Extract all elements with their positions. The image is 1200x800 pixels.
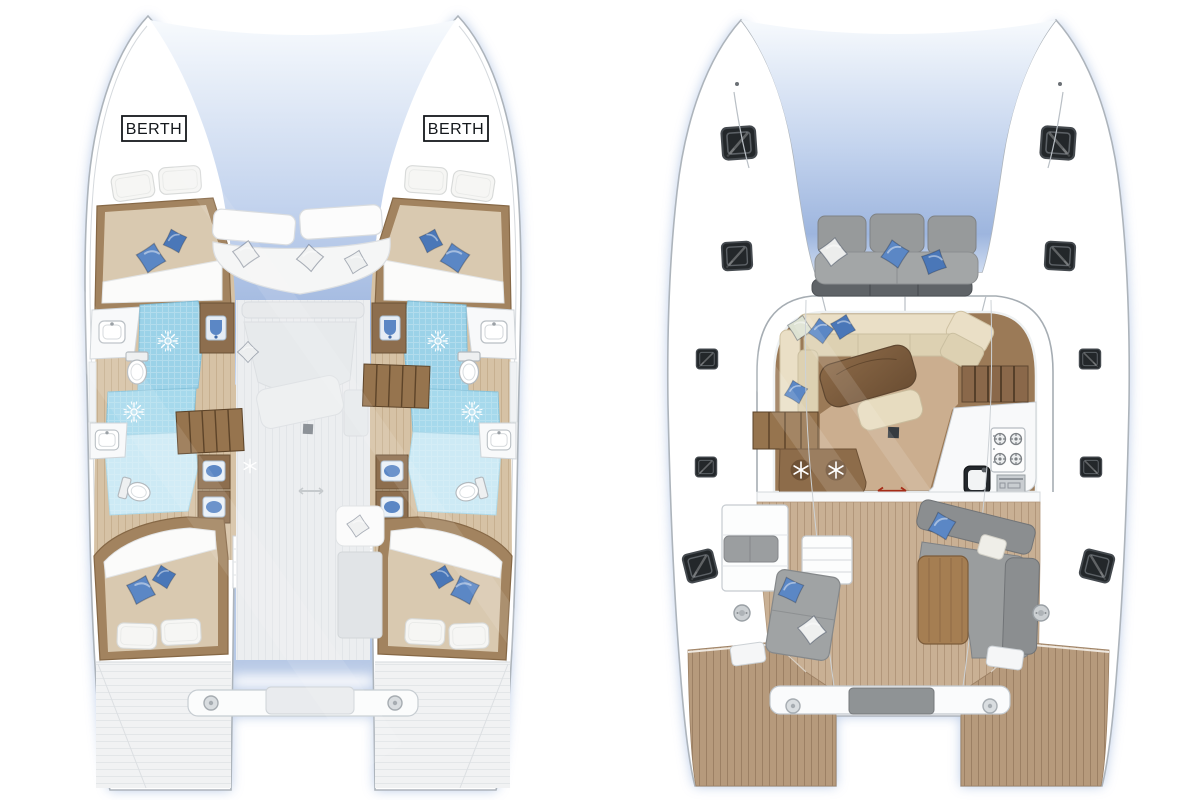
transom-beam bbox=[188, 687, 418, 716]
galley-cabinet bbox=[962, 366, 1028, 402]
berth-label-starboard: BERTH bbox=[424, 116, 488, 141]
deck-cleat-icon bbox=[786, 699, 800, 713]
lower-deck-plan: BERTH BERTH bbox=[0, 16, 541, 790]
berth-label-port: BERTH bbox=[122, 116, 186, 141]
deck-cleat-icon bbox=[204, 696, 218, 710]
starboard-companionway-steps bbox=[363, 364, 430, 408]
deck-cleat-icon bbox=[983, 699, 997, 713]
floor-hatch bbox=[730, 642, 766, 667]
floor-hatch bbox=[986, 646, 1024, 671]
stove-burner-icon bbox=[995, 454, 1006, 465]
cockpit-table bbox=[918, 556, 968, 644]
cockpit-bench-cushion bbox=[724, 536, 778, 562]
cockpit-chaise bbox=[765, 569, 841, 662]
berth-label-port-text: BERTH bbox=[126, 121, 182, 138]
stove-burner-icon bbox=[995, 434, 1006, 445]
deck-fitting-icon bbox=[1033, 605, 1049, 621]
foredeck-bench bbox=[812, 214, 978, 296]
deck-cleat-icon bbox=[388, 696, 402, 710]
transom-beam bbox=[770, 686, 1010, 714]
catamaran-floorplan-image: BERTH BERTH bbox=[0, 0, 1200, 800]
upper-deck-plan bbox=[668, 20, 1129, 786]
stove-burner-icon bbox=[1011, 454, 1022, 465]
stove-burner-icon bbox=[1011, 434, 1022, 445]
berth-label-starboard-text: BERTH bbox=[428, 121, 484, 138]
cockpit-sofa-back bbox=[1002, 557, 1039, 654]
oven bbox=[997, 475, 1025, 494]
deck-fitting-icon bbox=[734, 605, 750, 621]
floorplan-canvas: BERTH BERTH bbox=[0, 0, 1200, 800]
